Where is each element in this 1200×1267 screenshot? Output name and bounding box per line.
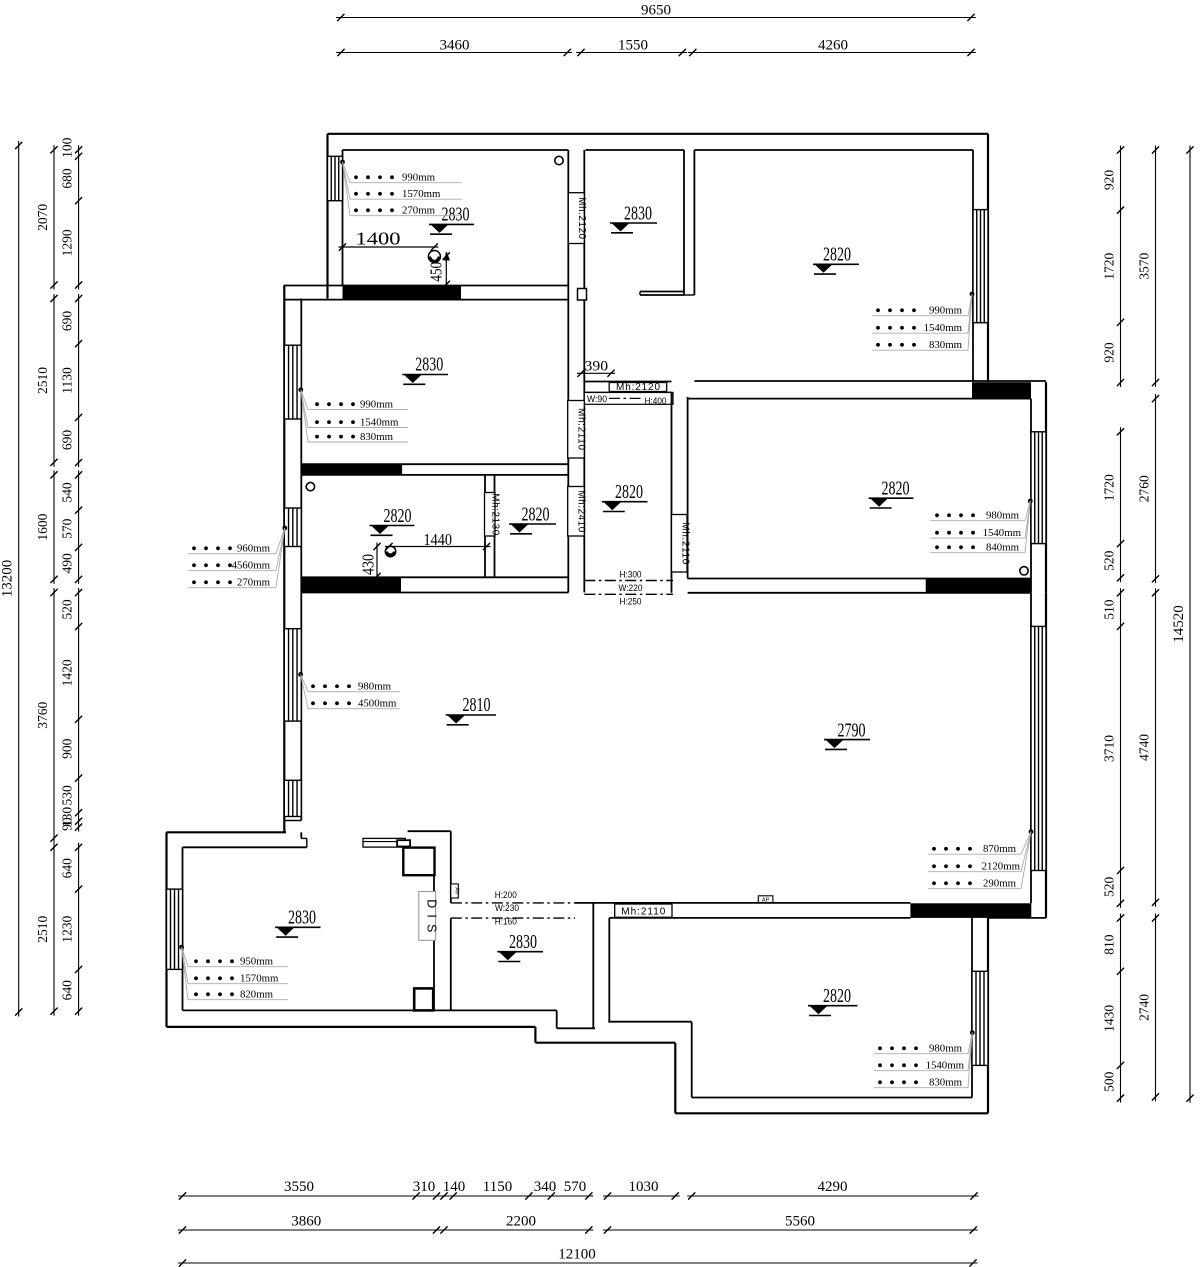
- svg-text:2830: 2830: [442, 204, 470, 226]
- svg-text:2820: 2820: [882, 477, 910, 499]
- svg-text:H:400: H:400: [645, 396, 667, 406]
- svg-text:4290: 4290: [818, 1179, 848, 1195]
- svg-text:510: 510: [1102, 599, 1117, 620]
- svg-text:1550: 1550: [618, 38, 648, 54]
- svg-text:W:90: W:90: [587, 394, 607, 404]
- svg-text:1720: 1720: [1102, 253, 1117, 280]
- svg-text:H:200: H:200: [495, 890, 517, 900]
- svg-text:980mm: 980mm: [929, 1043, 963, 1055]
- svg-text:2760: 2760: [1137, 475, 1152, 502]
- svg-text:2740: 2740: [1137, 994, 1152, 1021]
- svg-text:290mm: 290mm: [983, 878, 1017, 890]
- svg-text:540: 540: [60, 482, 75, 503]
- svg-text:990mm: 990mm: [402, 172, 436, 184]
- svg-text:1420: 1420: [60, 659, 75, 686]
- svg-text:2790: 2790: [838, 720, 866, 742]
- svg-text:3570: 3570: [1137, 253, 1152, 280]
- svg-text:1540mm: 1540mm: [360, 416, 399, 428]
- svg-text:Mh:2410: Mh:2410: [576, 490, 587, 532]
- svg-text:2200: 2200: [506, 1214, 536, 1230]
- svg-text:1720: 1720: [1102, 474, 1117, 501]
- svg-text:490: 490: [60, 553, 75, 574]
- svg-text:AP: AP: [762, 897, 770, 903]
- svg-text:2820: 2820: [615, 481, 643, 503]
- svg-text:690: 690: [60, 430, 75, 451]
- svg-text:450: 450: [427, 262, 446, 282]
- svg-text:9650: 9650: [641, 3, 671, 19]
- svg-text:140: 140: [443, 1179, 466, 1195]
- svg-text:Mh:2120: Mh:2120: [616, 382, 660, 393]
- svg-text:1400: 1400: [356, 229, 401, 249]
- svg-text:500: 500: [1102, 1071, 1117, 1092]
- svg-text:810: 810: [1102, 934, 1117, 955]
- svg-text:680: 680: [60, 168, 75, 189]
- svg-text:90: 90: [60, 817, 75, 831]
- svg-text:1030: 1030: [629, 1179, 659, 1195]
- svg-text:2830: 2830: [415, 354, 443, 376]
- svg-text:3460: 3460: [440, 38, 470, 54]
- svg-text:640: 640: [60, 980, 75, 1001]
- svg-text:2820: 2820: [823, 985, 851, 1007]
- svg-text:2810: 2810: [463, 694, 491, 716]
- svg-text:270mm: 270mm: [237, 577, 271, 589]
- svg-text:2510: 2510: [35, 367, 50, 394]
- svg-text:1290: 1290: [60, 229, 75, 256]
- svg-text:3550: 3550: [284, 1179, 314, 1195]
- svg-text:Mh:2130: Mh:2130: [489, 493, 500, 535]
- svg-text:520: 520: [1102, 550, 1117, 571]
- svg-text:13200: 13200: [0, 560, 16, 598]
- svg-text:W:230: W:230: [495, 903, 519, 913]
- svg-text:520: 520: [60, 599, 75, 620]
- svg-text:840mm: 840mm: [986, 542, 1020, 554]
- svg-text:2830: 2830: [509, 931, 537, 953]
- svg-text:Mh:2110: Mh:2110: [621, 906, 665, 917]
- svg-text:1440: 1440: [424, 530, 453, 549]
- svg-text:270mm: 270mm: [402, 205, 436, 217]
- svg-text:12100: 12100: [558, 1247, 596, 1263]
- svg-text:W:220: W:220: [619, 583, 643, 593]
- svg-text:Mh:2110: Mh:2110: [679, 522, 690, 564]
- svg-text:2820: 2820: [522, 503, 550, 525]
- svg-text:2820: 2820: [823, 243, 851, 265]
- svg-text:920: 920: [1102, 170, 1117, 191]
- svg-text:520: 520: [1102, 877, 1117, 898]
- svg-text:640: 640: [60, 858, 75, 879]
- svg-text:4560mm: 4560mm: [232, 560, 271, 572]
- svg-text:1430: 1430: [1102, 1005, 1117, 1032]
- svg-text:100: 100: [60, 137, 75, 158]
- svg-text:950mm: 950mm: [240, 956, 274, 968]
- svg-text:990mm: 990mm: [929, 305, 963, 317]
- svg-text:820mm: 820mm: [240, 989, 274, 1001]
- svg-text:980mm: 980mm: [358, 681, 392, 693]
- svg-text:690: 690: [60, 311, 75, 332]
- svg-text:990mm: 990mm: [360, 398, 394, 410]
- svg-text:980mm: 980mm: [986, 510, 1020, 522]
- svg-text:570: 570: [564, 1179, 587, 1195]
- svg-text:H:160: H:160: [495, 917, 517, 927]
- svg-text:310: 310: [413, 1179, 436, 1195]
- svg-text:430: 430: [359, 554, 378, 575]
- svg-text:4260: 4260: [818, 38, 848, 54]
- svg-text:Mh:2110: Mh:2110: [576, 408, 587, 450]
- svg-text:H:250: H:250: [620, 596, 642, 606]
- svg-text:900: 900: [60, 738, 75, 759]
- svg-text:3860: 3860: [291, 1214, 321, 1230]
- svg-text:1150: 1150: [483, 1179, 512, 1195]
- svg-text:570: 570: [60, 518, 75, 539]
- svg-text:4500mm: 4500mm: [358, 698, 397, 710]
- svg-text:DIS: DIS: [425, 899, 439, 932]
- svg-text:2820: 2820: [384, 505, 412, 527]
- svg-text:2510: 2510: [35, 916, 50, 943]
- svg-text:1570mm: 1570mm: [402, 188, 441, 200]
- svg-text:AV: AV: [453, 887, 459, 894]
- svg-text:3710: 3710: [1102, 735, 1117, 762]
- svg-text:2830: 2830: [288, 907, 316, 929]
- svg-text:2830: 2830: [624, 203, 652, 225]
- svg-text:960mm: 960mm: [237, 543, 271, 555]
- svg-text:14520: 14520: [1171, 605, 1187, 643]
- svg-text:1130: 1130: [60, 367, 75, 394]
- svg-text:2120mm: 2120mm: [982, 861, 1021, 873]
- svg-text:1540mm: 1540mm: [924, 322, 963, 334]
- svg-text:1540mm: 1540mm: [926, 1060, 965, 1072]
- svg-text:1570mm: 1570mm: [240, 973, 279, 985]
- svg-text:870mm: 870mm: [983, 843, 1017, 855]
- svg-text:H:300: H:300: [620, 569, 642, 579]
- svg-text:2070: 2070: [35, 204, 50, 231]
- svg-text:830mm: 830mm: [929, 339, 963, 351]
- svg-text:3760: 3760: [35, 702, 50, 729]
- svg-text:Mh:2120: Mh:2120: [576, 197, 587, 239]
- svg-text:1540mm: 1540mm: [983, 527, 1022, 539]
- svg-text:830mm: 830mm: [360, 431, 394, 443]
- svg-text:340: 340: [534, 1179, 557, 1195]
- svg-text:830mm: 830mm: [929, 1077, 963, 1089]
- svg-text:4740: 4740: [1137, 734, 1152, 761]
- svg-text:530: 530: [60, 785, 75, 806]
- svg-text:5560: 5560: [785, 1214, 815, 1230]
- svg-text:920: 920: [1102, 342, 1117, 363]
- svg-text:390: 390: [585, 359, 609, 375]
- svg-text:1230: 1230: [60, 916, 75, 943]
- svg-text:1600: 1600: [35, 513, 50, 540]
